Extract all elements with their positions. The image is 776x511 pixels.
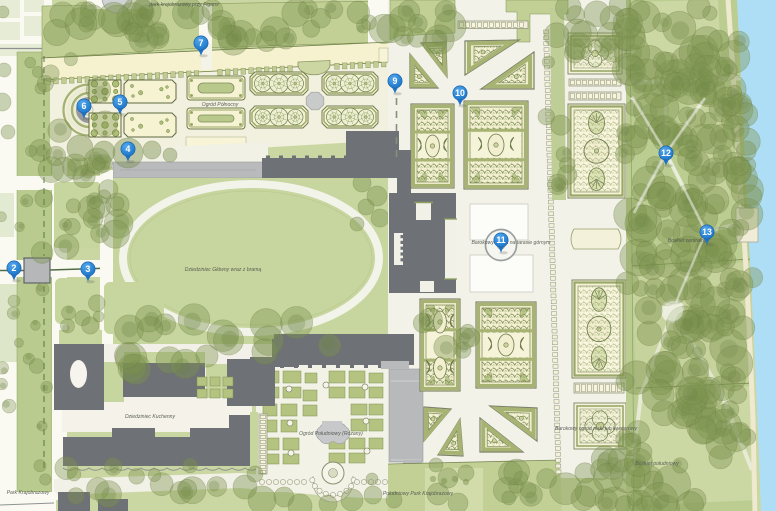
svg-text:13: 13 bbox=[702, 227, 712, 237]
svg-text:Dziedziniec Kuchenny: Dziedziniec Kuchenny bbox=[125, 414, 176, 420]
svg-text:Ogród Południowy (Różany): Ogród Południowy (Różany) bbox=[299, 431, 363, 437]
svg-text:Boskiet centralny: Boskiet centralny bbox=[668, 238, 707, 244]
svg-text:Południowy Park Krajobrazowy: Południowy Park Krajobrazowy bbox=[383, 491, 454, 497]
svg-text:3: 3 bbox=[86, 264, 91, 274]
svg-text:12: 12 bbox=[661, 148, 671, 158]
svg-text:4: 4 bbox=[126, 144, 131, 154]
svg-text:10: 10 bbox=[455, 88, 465, 98]
svg-text:2: 2 bbox=[12, 263, 17, 273]
svg-text:park krajobrazowy przy Figarni: park krajobrazowy przy Figarni bbox=[148, 2, 219, 8]
svg-text:11: 11 bbox=[496, 235, 505, 245]
svg-text:7: 7 bbox=[199, 38, 204, 48]
svg-text:Barokowy ogród na tarasie górn: Barokowy ogród na tarasie górnym bbox=[472, 240, 551, 246]
svg-text:Dziedziniec Główny wraz z bram: Dziedziniec Główny wraz z bramą bbox=[185, 267, 262, 273]
svg-text:Boskiet południowy: Boskiet południowy bbox=[635, 461, 679, 467]
svg-text:6: 6 bbox=[82, 101, 87, 111]
svg-text:9: 9 bbox=[393, 76, 398, 86]
svg-text:Barokowy ogród niski lub kwate: Barokowy ogród niski lub kwaterowy bbox=[555, 426, 638, 432]
svg-text:Ogród Północny: Ogród Północny bbox=[202, 102, 239, 108]
svg-text:5: 5 bbox=[118, 97, 123, 107]
svg-text:Park Krajobrazowy: Park Krajobrazowy bbox=[7, 490, 50, 496]
